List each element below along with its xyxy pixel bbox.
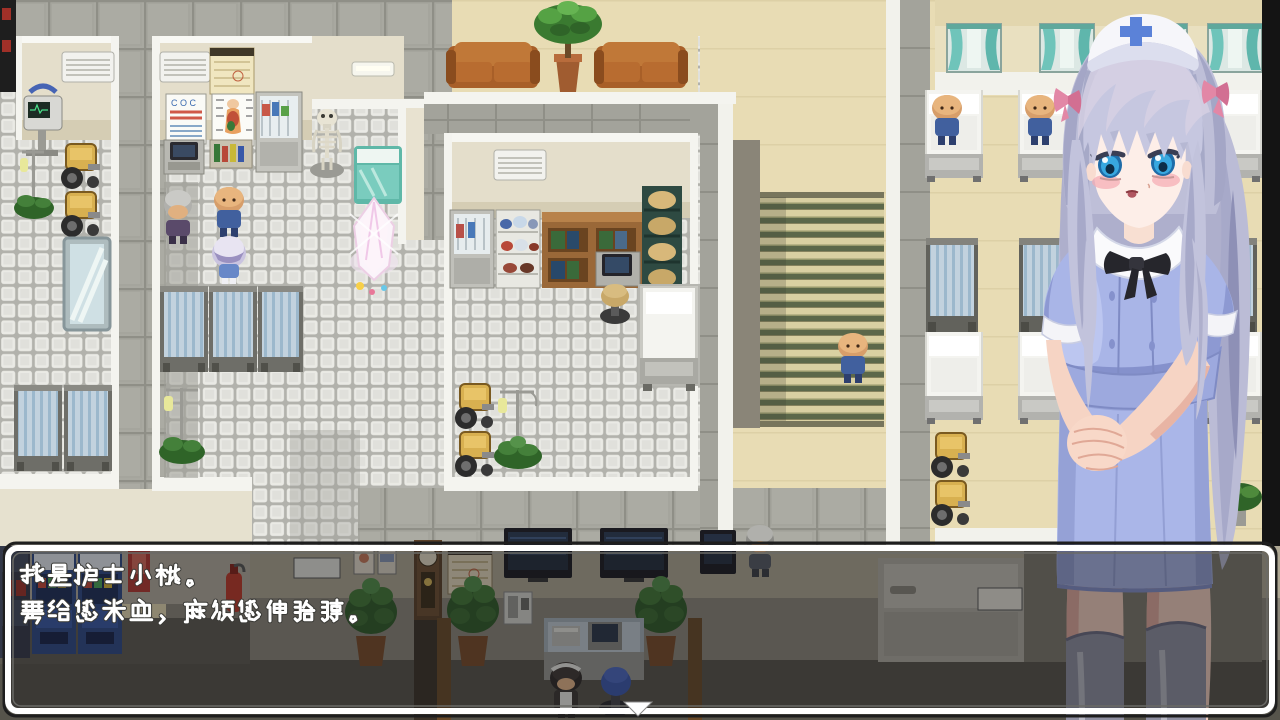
svg-text:C O C: C O C [171,98,197,108]
